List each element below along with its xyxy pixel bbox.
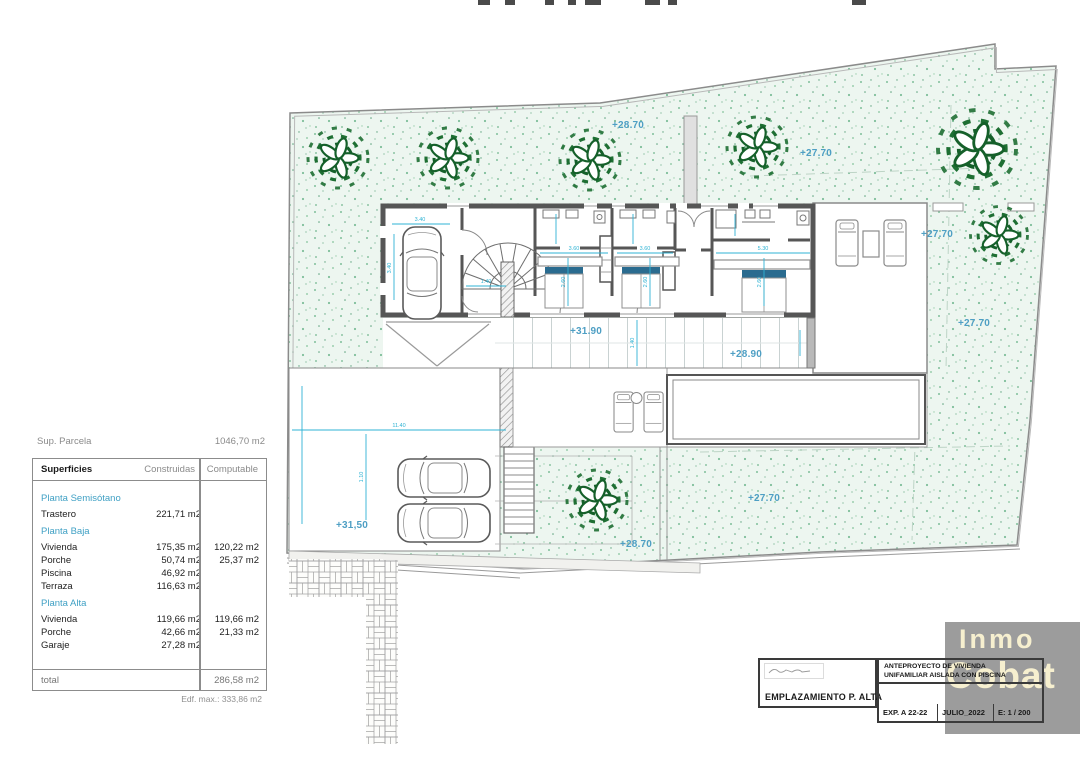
terrace-table xyxy=(863,231,879,257)
elevation-label: +28.70 xyxy=(620,539,652,550)
elevation-label: +28.70 xyxy=(612,120,644,131)
table-header: Superficies Construidas Computable xyxy=(33,459,266,481)
pool-lounger-2 xyxy=(644,392,663,432)
pool-side-table xyxy=(631,393,642,404)
table-total-row: total 286,58 m2 xyxy=(33,669,266,690)
dim-terrace-depth: 1.40 xyxy=(630,338,636,349)
dim-bed2-width: 3.60 xyxy=(640,246,651,252)
pool-lounger-1 xyxy=(614,392,633,432)
dim-master-depth: 2.60 xyxy=(757,277,763,288)
drawing-scale: E: 1 / 200 xyxy=(993,704,1042,721)
dim-parking-width: 11.40 xyxy=(392,423,405,429)
garden-wall xyxy=(684,116,697,204)
table-row: Terraza116,63 m2 xyxy=(33,580,266,593)
dim-garage-width: 3.40 xyxy=(415,217,426,223)
drawing-date: JULIO_2022 xyxy=(937,704,993,721)
drawing-title: EMPLAZAMIENTO P. ALTA xyxy=(765,692,882,702)
project-description: ANTEPROYECTO DE VIVIENDA UNIFAMILIAR AIS… xyxy=(879,660,1042,684)
table-body: Planta Semisótano Trastero221,71 m2 Plan… xyxy=(33,481,266,652)
table-row: Vivienda175,35 m2120,22 m2 xyxy=(33,541,266,554)
elevation-label: +31.90 xyxy=(570,326,602,337)
dim-bed1-width: 3.60 xyxy=(569,246,580,252)
terrace-lounger-2 xyxy=(884,220,906,266)
elevation-label: +27.70 xyxy=(921,229,953,240)
elevation-label: +28.90 xyxy=(730,349,762,360)
header-superficies: Superficies xyxy=(33,464,137,475)
parked-car-1 xyxy=(398,456,490,500)
parked-car-2 xyxy=(398,501,490,545)
logo-line1: Inmo xyxy=(959,624,1036,655)
surfaces-table: Superficies Construidas Computable Plant… xyxy=(32,458,267,691)
table-row: Garaje27,28 m2 xyxy=(33,639,266,652)
header-construidas: Construidas xyxy=(137,464,195,475)
dim-master-width: 5.30 xyxy=(758,246,769,252)
expedient-number: EXP. A 22-22 xyxy=(879,704,937,721)
table-row: Planta Semisótano xyxy=(33,488,266,508)
dim-bed1-depth: 2.60 xyxy=(561,277,567,288)
elevation-label: +27.70 xyxy=(748,493,780,504)
titleblock-project: ANTEPROYECTO DE VIVIENDA UNIFAMILIAR AIS… xyxy=(877,658,1044,723)
total-label: total xyxy=(33,675,145,686)
dim-parking-depth: 1.10 xyxy=(359,472,365,483)
table-column-divider xyxy=(199,459,201,690)
parcel-summary: Sup. Parcela 1046,70 m2 xyxy=(37,436,265,447)
pool xyxy=(667,375,925,444)
dim-hall: 1.40 xyxy=(481,279,492,285)
elevation-label: +27.70 xyxy=(958,318,990,329)
titleblock-drawing: EMPLAZAMIENTO P. ALTA xyxy=(758,658,877,708)
dim-garage-depth: 3.40 xyxy=(387,263,393,274)
garage-car xyxy=(400,227,444,319)
paved-path-vertical xyxy=(366,560,398,744)
table-row: Planta Alta xyxy=(33,593,266,613)
table-row: Trastero221,71 m2 xyxy=(33,508,266,521)
table-row: Vivienda119,66 m2119,66 m2 xyxy=(33,613,266,626)
table-row: Porche50,74 m225,37 m2 xyxy=(33,554,266,567)
project-line1: ANTEPROYECTO DE VIVIENDA xyxy=(884,663,1042,672)
table-row: Piscina46,92 m2 xyxy=(33,567,266,580)
dim-bed2-depth: 2.60 xyxy=(643,277,649,288)
site-plan-sheet: 3.40 3.40 1.40 3.60 2.60 3.60 2.60 5.30 … xyxy=(0,0,1080,759)
pool-area xyxy=(513,368,927,447)
max-buildable-note: Edf. max.: 333,86 m2 xyxy=(32,694,262,704)
house-block xyxy=(380,203,813,319)
elevation-label: +31,50 xyxy=(336,520,368,531)
terrace-lounger-1 xyxy=(836,220,858,266)
retaining-wall-hatch xyxy=(500,368,513,447)
exterior-stair xyxy=(504,447,534,533)
signature-scribble xyxy=(765,665,821,677)
titleblock-bottom-row: EXP. A 22-22 JULIO_2022 E: 1 / 200 xyxy=(879,704,1042,721)
signature-frame xyxy=(764,663,824,679)
table-row: Porche42,66 m221,33 m2 xyxy=(33,626,266,639)
total-value: 286,58 m2 xyxy=(145,675,266,686)
elevation-label: +27.70 xyxy=(800,148,832,159)
table-row: Planta Baja xyxy=(33,521,266,541)
parcel-summary-value: 1046,70 m2 xyxy=(215,436,265,447)
header-computable: Computable xyxy=(195,464,266,475)
project-line2: UNIFAMILIAR AISLADA CON PISCINA xyxy=(884,672,1042,681)
parcel-summary-label: Sup. Parcela xyxy=(37,436,91,447)
